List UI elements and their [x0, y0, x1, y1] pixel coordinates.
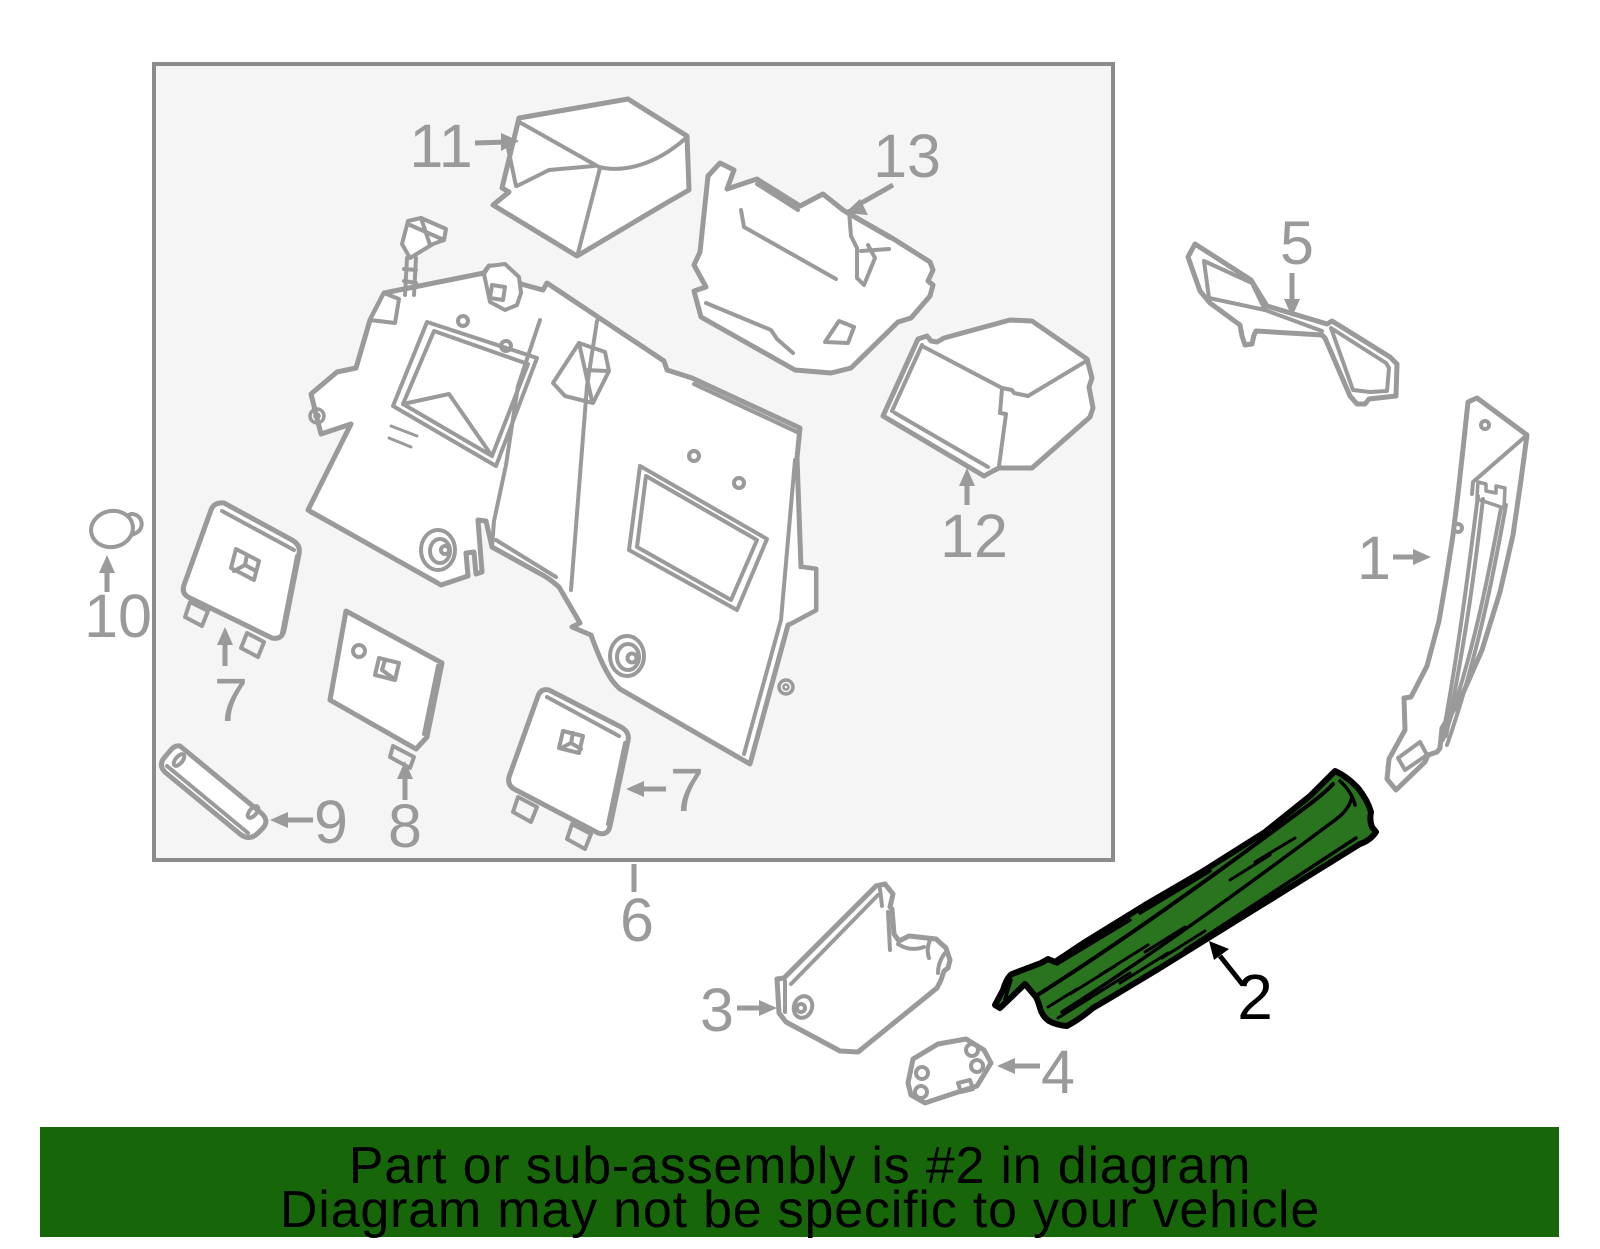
svg-text:7: 7 [214, 666, 248, 734]
svg-text:13: 13 [873, 122, 941, 190]
svg-text:6: 6 [620, 886, 654, 954]
svg-text:2: 2 [1237, 961, 1273, 1033]
svg-text:9: 9 [314, 788, 348, 856]
svg-text:Diagram may not be specific to: Diagram may not be specific to your vehi… [280, 1181, 1320, 1239]
svg-text:1: 1 [1357, 524, 1391, 592]
svg-text:4: 4 [1041, 1038, 1075, 1106]
svg-text:8: 8 [388, 792, 422, 860]
svg-text:12: 12 [940, 502, 1008, 570]
svg-text:10: 10 [84, 582, 152, 650]
svg-text:7: 7 [670, 756, 704, 824]
svg-text:3: 3 [700, 976, 734, 1044]
svg-text:5: 5 [1280, 209, 1314, 277]
svg-text:11: 11 [409, 112, 472, 180]
